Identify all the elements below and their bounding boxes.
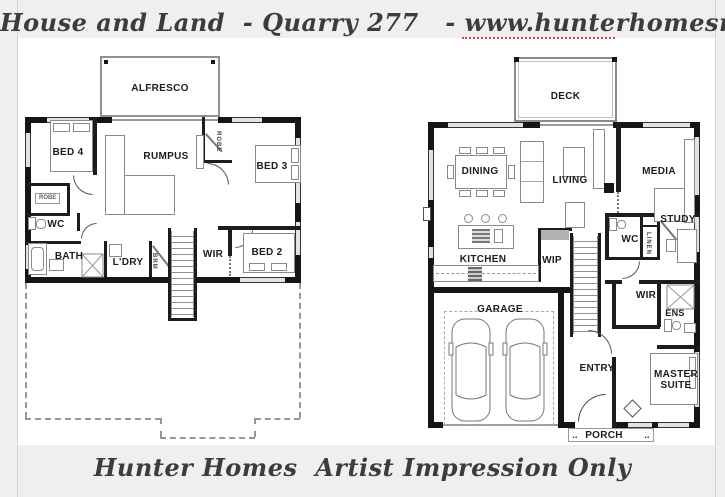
- ground-outline: [254, 418, 256, 437]
- room-label-deck: DECK: [514, 91, 617, 102]
- room-label-media: MEDIA: [631, 166, 687, 177]
- porch-dots: ..: [570, 430, 580, 440]
- armchair-icon: [565, 202, 585, 228]
- room-label-master: MASTER SUITE: [645, 369, 707, 391]
- room-label-alfresco: ALFRESCO: [100, 83, 220, 94]
- armchair-icon: [563, 147, 585, 177]
- porch-dots: ..: [642, 430, 652, 440]
- room-label-robe-bed3: ROBE: [215, 125, 221, 159]
- basin-icon: [684, 323, 696, 333]
- car-icon: [502, 317, 548, 423]
- shower-icon: [666, 284, 695, 310]
- room-label-linen: LINEN: [645, 229, 651, 257]
- desk-icon: [677, 229, 697, 263]
- wall: [433, 287, 570, 293]
- window: [428, 247, 434, 258]
- ground-outline: [25, 418, 161, 420]
- shelf-line: [521, 161, 543, 162]
- wall: [558, 287, 564, 428]
- wall: [25, 213, 70, 216]
- window: [240, 277, 285, 283]
- meter-box: [423, 207, 431, 221]
- footer-title: Hunter Homes Artist Impression Only: [0, 453, 725, 482]
- spellcheck-squiggle-icon: [462, 33, 615, 39]
- toilet-icon: [617, 220, 626, 229]
- room-label-wir: WIR: [195, 249, 231, 260]
- stairs: [573, 236, 598, 334]
- ground-outline: [255, 418, 300, 420]
- room-label-bed3: BED 3: [247, 161, 297, 172]
- window: [658, 422, 689, 428]
- door-arc: [81, 223, 97, 239]
- chair-icon: [459, 147, 471, 154]
- door-diamond: [623, 399, 641, 417]
- oven-icon: [468, 267, 482, 281]
- room-label-study: STUDY: [654, 214, 702, 225]
- wall: [657, 345, 700, 349]
- cased-opening: [617, 192, 619, 213]
- wall: [605, 257, 660, 260]
- ground-outline: [299, 283, 301, 418]
- ground-floor-plan: DECK: [428, 57, 700, 447]
- room-label-wir: WIR: [624, 290, 668, 301]
- ground-outline: [160, 437, 255, 439]
- room-label-entry: ENTRY: [572, 363, 622, 374]
- wall: [612, 325, 660, 329]
- room-label-dining: DINING: [450, 166, 510, 177]
- sliding-door-line: [540, 124, 613, 126]
- toilet-icon: [672, 321, 681, 330]
- room-label-wc: WC: [613, 234, 647, 245]
- sink-icon: [494, 229, 503, 243]
- pillow: [53, 123, 70, 132]
- wall: [612, 284, 616, 327]
- window: [428, 150, 434, 200]
- pantry-shelf-icon: [541, 230, 569, 240]
- wall: [616, 122, 621, 192]
- bathtub-icon: [31, 247, 44, 271]
- wall: [77, 213, 80, 231]
- room-label-kitchen: KITCHEN: [453, 254, 513, 265]
- room-label-robe-bed4: ROBE: [35, 193, 60, 204]
- alfresco-post: [104, 60, 108, 64]
- stool-icon: [481, 214, 490, 223]
- room-label-brm: BRM: [151, 248, 157, 274]
- sofa-icon: [124, 175, 175, 215]
- chair-icon: [666, 239, 676, 252]
- sofa-icon: [105, 135, 125, 215]
- chair-icon: [459, 190, 471, 197]
- page-title: House and Land - Quarry 277 - www.hunter…: [0, 8, 725, 37]
- room-label-garage: GARAGE: [470, 304, 530, 315]
- alfresco-post: [211, 60, 215, 64]
- wall: [67, 183, 70, 213]
- bench-dash-line: [436, 273, 536, 274]
- laundry-tub-icon: [109, 244, 122, 257]
- door-arc: [622, 261, 640, 279]
- room-label-wip: WIP: [536, 255, 568, 266]
- window: [232, 117, 262, 123]
- stair-wall: [598, 233, 601, 337]
- entry-door-arc: [578, 394, 606, 422]
- stair-wall: [194, 228, 197, 320]
- toilet-icon: [28, 217, 36, 230]
- room-label-wc: WC: [41, 219, 71, 230]
- page-border-left: [17, 0, 18, 497]
- room-label-bed2: BED 2: [243, 247, 291, 258]
- toilet-icon: [609, 218, 617, 231]
- page-border-right: [715, 0, 716, 497]
- room-label-bath: BATH: [49, 251, 89, 262]
- wall: [93, 117, 97, 175]
- wall: [25, 183, 70, 186]
- cooktop-icon: [472, 229, 490, 243]
- pillow: [249, 263, 265, 271]
- room-label-ens: ENS: [659, 308, 691, 318]
- stool-icon: [498, 214, 507, 223]
- window: [448, 122, 523, 128]
- sofa-icon: [684, 139, 695, 223]
- pillow: [271, 263, 287, 271]
- ground-outline: [25, 283, 27, 418]
- door-arc: [73, 175, 93, 195]
- door-arc: [588, 330, 612, 354]
- deck-outline: [518, 61, 613, 118]
- chair-icon: [493, 147, 505, 154]
- chair-icon: [493, 190, 505, 197]
- room-label-ldry: L'DRY: [105, 257, 151, 268]
- chair-icon: [476, 190, 488, 197]
- deck-post: [514, 57, 519, 62]
- room-label-porch: PORCH: [580, 430, 628, 441]
- stool-icon: [464, 214, 473, 223]
- room-label-rumpus: RUMPUS: [131, 151, 201, 162]
- tv-corner-block: [604, 183, 614, 193]
- room-label-living: LIVING: [540, 175, 600, 186]
- door-arc: [207, 163, 229, 185]
- shelf-icon: [520, 141, 544, 203]
- window: [643, 122, 690, 128]
- room-label-bed4: BED 4: [43, 147, 93, 158]
- ground-outline: [160, 418, 162, 437]
- deck-post: [612, 57, 617, 62]
- pillow: [73, 123, 90, 132]
- chair-icon: [476, 147, 488, 154]
- stairs: [171, 231, 194, 317]
- upper-floor-plan: ALFRESCO: [25, 55, 302, 445]
- car-icon: [448, 317, 494, 423]
- stair-wall: [168, 318, 197, 321]
- toilet-icon: [664, 319, 672, 332]
- wall: [640, 225, 658, 227]
- window: [25, 133, 31, 167]
